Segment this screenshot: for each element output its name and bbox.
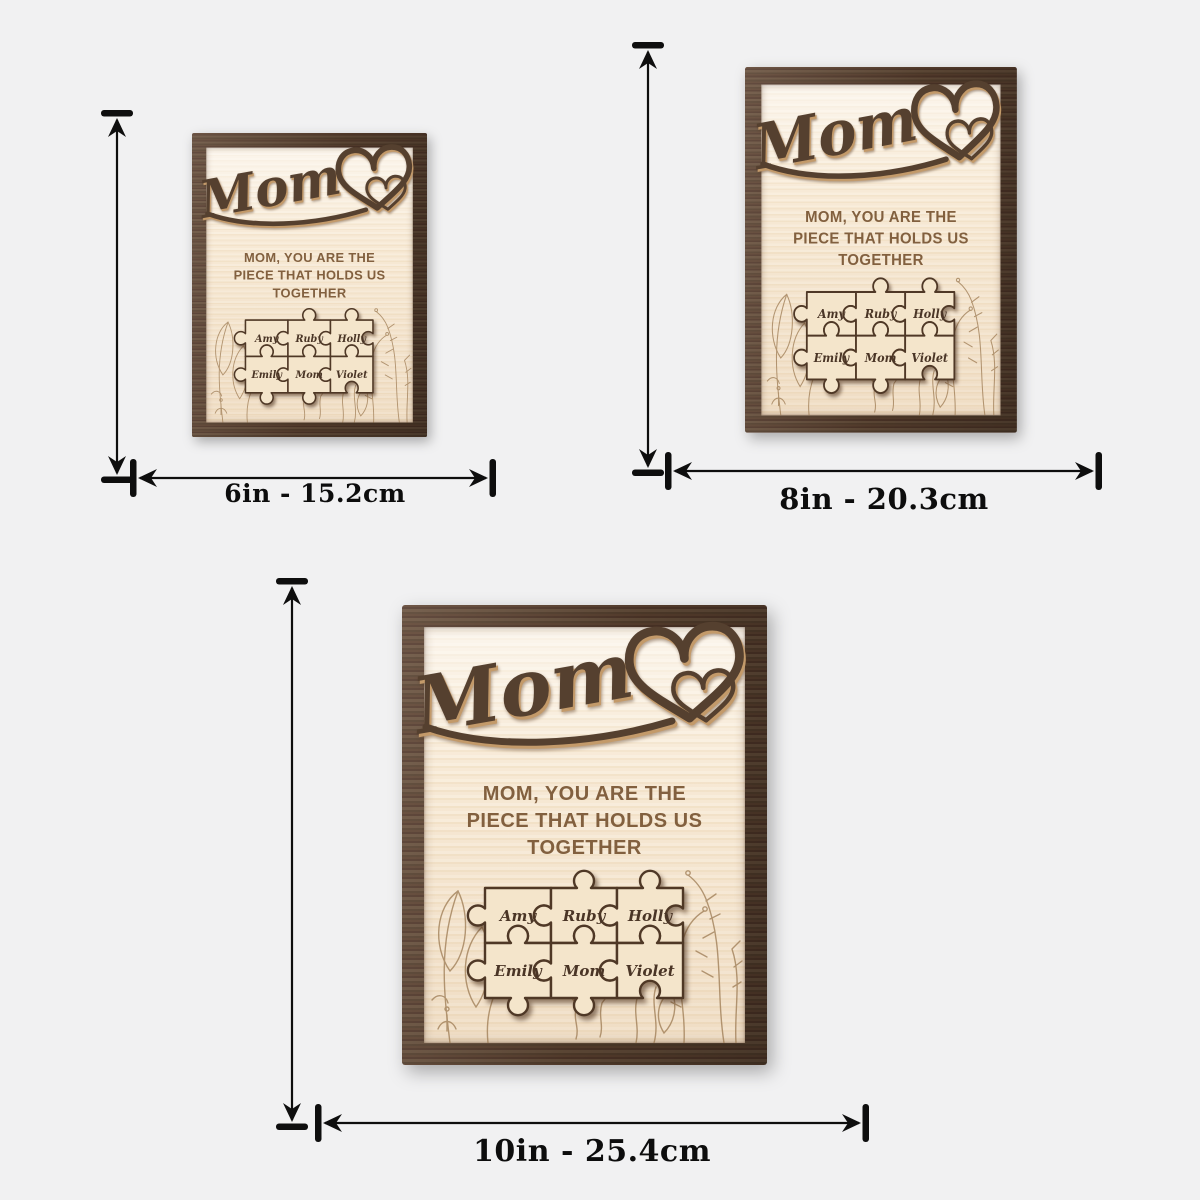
puzzle-name: Ruby (864, 307, 898, 321)
dim-cap (1096, 452, 1103, 490)
subtitle: MOM, YOU ARE THE PIECE THAT HOLDS US TOG… (206, 249, 413, 303)
puzzle-name: Mom (295, 370, 323, 381)
seed-dot (777, 387, 780, 390)
dim-cap (130, 459, 137, 497)
plaque-8in: Mom MOM, YOU ARE THE PIECE THAT HOLDS US… (745, 67, 1017, 433)
subtitle-line-3: TOGETHER (761, 250, 1000, 271)
seed-dot (445, 1007, 449, 1011)
branch (991, 334, 998, 415)
mom-header: Mom (424, 623, 746, 768)
subtitle: MOM, YOU ARE THE PIECE THAT HOLDS US TOG… (761, 207, 1000, 271)
puzzle-name: Holly (912, 307, 947, 321)
size-label-6in: 6in - 15.2cm (224, 479, 405, 508)
puzzle-grid: Amy Ruby Holly Emily Mom Violet (232, 307, 387, 406)
height-arrow-10in (272, 578, 312, 1130)
dim-cap (315, 1104, 322, 1142)
subtitle-line-3: TOGETHER (424, 835, 745, 862)
flower-bud (215, 404, 227, 415)
dim-cap (863, 1104, 870, 1142)
flower-bud (438, 1015, 456, 1031)
dim-cap (101, 110, 133, 117)
branch (732, 941, 742, 1043)
subtitle-line-3: TOGETHER (206, 285, 413, 303)
puzzle-name: Amy (254, 334, 280, 345)
size-label-10in: 10in - 25.4cm (473, 1134, 711, 1169)
puzzle-grid: Amy Ruby Holly Emily Mom Violet (791, 276, 970, 395)
plaque-panel: Mom MOM, YOU ARE THE PIECE THAT HOLDS US… (424, 627, 745, 1043)
dim-cap (632, 42, 664, 49)
mom-header: Mom (761, 81, 1001, 196)
puzzle-name: Mom (864, 351, 897, 365)
flower-bud (772, 393, 785, 406)
subtitle-line-1: MOM, YOU ARE THE (761, 207, 1000, 228)
dim-cap (276, 1124, 308, 1131)
subtitle-line-2: PIECE THAT HOLDS US (424, 808, 745, 835)
size-chart-image: Mom MOM, YOU ARE THE PIECE THAT HOLDS US… (0, 0, 1200, 1200)
puzzle-name: Emily (250, 370, 283, 381)
plaque-panel: Mom MOM, YOU ARE THE PIECE THAT HOLDS US… (206, 148, 413, 423)
puzzle-name: Mom (562, 962, 605, 980)
subtitle-line-1: MOM, YOU ARE THE (424, 781, 745, 808)
puzzle-name: Holly (336, 334, 367, 345)
dim-cap (490, 459, 497, 497)
puzzle-name: Violet (911, 351, 948, 365)
puzzle-name: Amy (817, 307, 846, 321)
puzzle-name: Emily (493, 962, 543, 980)
puzzle-name: Holly (627, 907, 674, 925)
height-arrow-8in (628, 42, 668, 476)
plaque-panel: Mom MOM, YOU ARE THE PIECE THAT HOLDS US… (761, 84, 1000, 415)
wooden-plaque: Mom MOM, YOU ARE THE PIECE THAT HOLDS US… (745, 67, 1017, 433)
dim-cap (632, 470, 664, 477)
dim-cap (101, 477, 133, 484)
puzzle-name: Amy (498, 907, 538, 925)
plaque-10in: Mom MOM, YOU ARE THE PIECE THAT HOLDS US… (402, 605, 767, 1065)
puzzle-name: Violet (625, 962, 674, 980)
puzzle-name: Ruby (295, 334, 325, 345)
plaque-6in: Mom MOM, YOU ARE THE PIECE THAT HOLDS US… (192, 133, 427, 437)
leaf (216, 322, 233, 375)
subtitle-line-1: MOM, YOU ARE THE (206, 249, 413, 267)
dim-cap (665, 452, 672, 490)
puzzle-name: Violet (336, 370, 368, 381)
wooden-plaque: Mom MOM, YOU ARE THE PIECE THAT HOLDS US… (192, 133, 427, 437)
wooden-plaque: Mom MOM, YOU ARE THE PIECE THAT HOLDS US… (402, 605, 767, 1065)
subtitle-line-2: PIECE THAT HOLDS US (761, 228, 1000, 249)
subtitle: MOM, YOU ARE THE PIECE THAT HOLDS US TOG… (424, 781, 745, 862)
subtitle-line-2: PIECE THAT HOLDS US (206, 267, 413, 285)
leaf (439, 891, 466, 971)
seed-dot (220, 399, 223, 402)
puzzle-grid: Amy Ruby Holly Emily Mom Violet (464, 868, 704, 1018)
branch (405, 355, 411, 422)
height-arrow-6in (97, 110, 137, 483)
mom-header: Mom (206, 145, 413, 241)
puzzle-name: Ruby (562, 907, 607, 925)
leaf (772, 294, 792, 358)
puzzle-name: Emily (813, 351, 851, 365)
dim-cap (276, 578, 308, 585)
size-label-8in: 8in - 20.3cm (779, 482, 988, 516)
